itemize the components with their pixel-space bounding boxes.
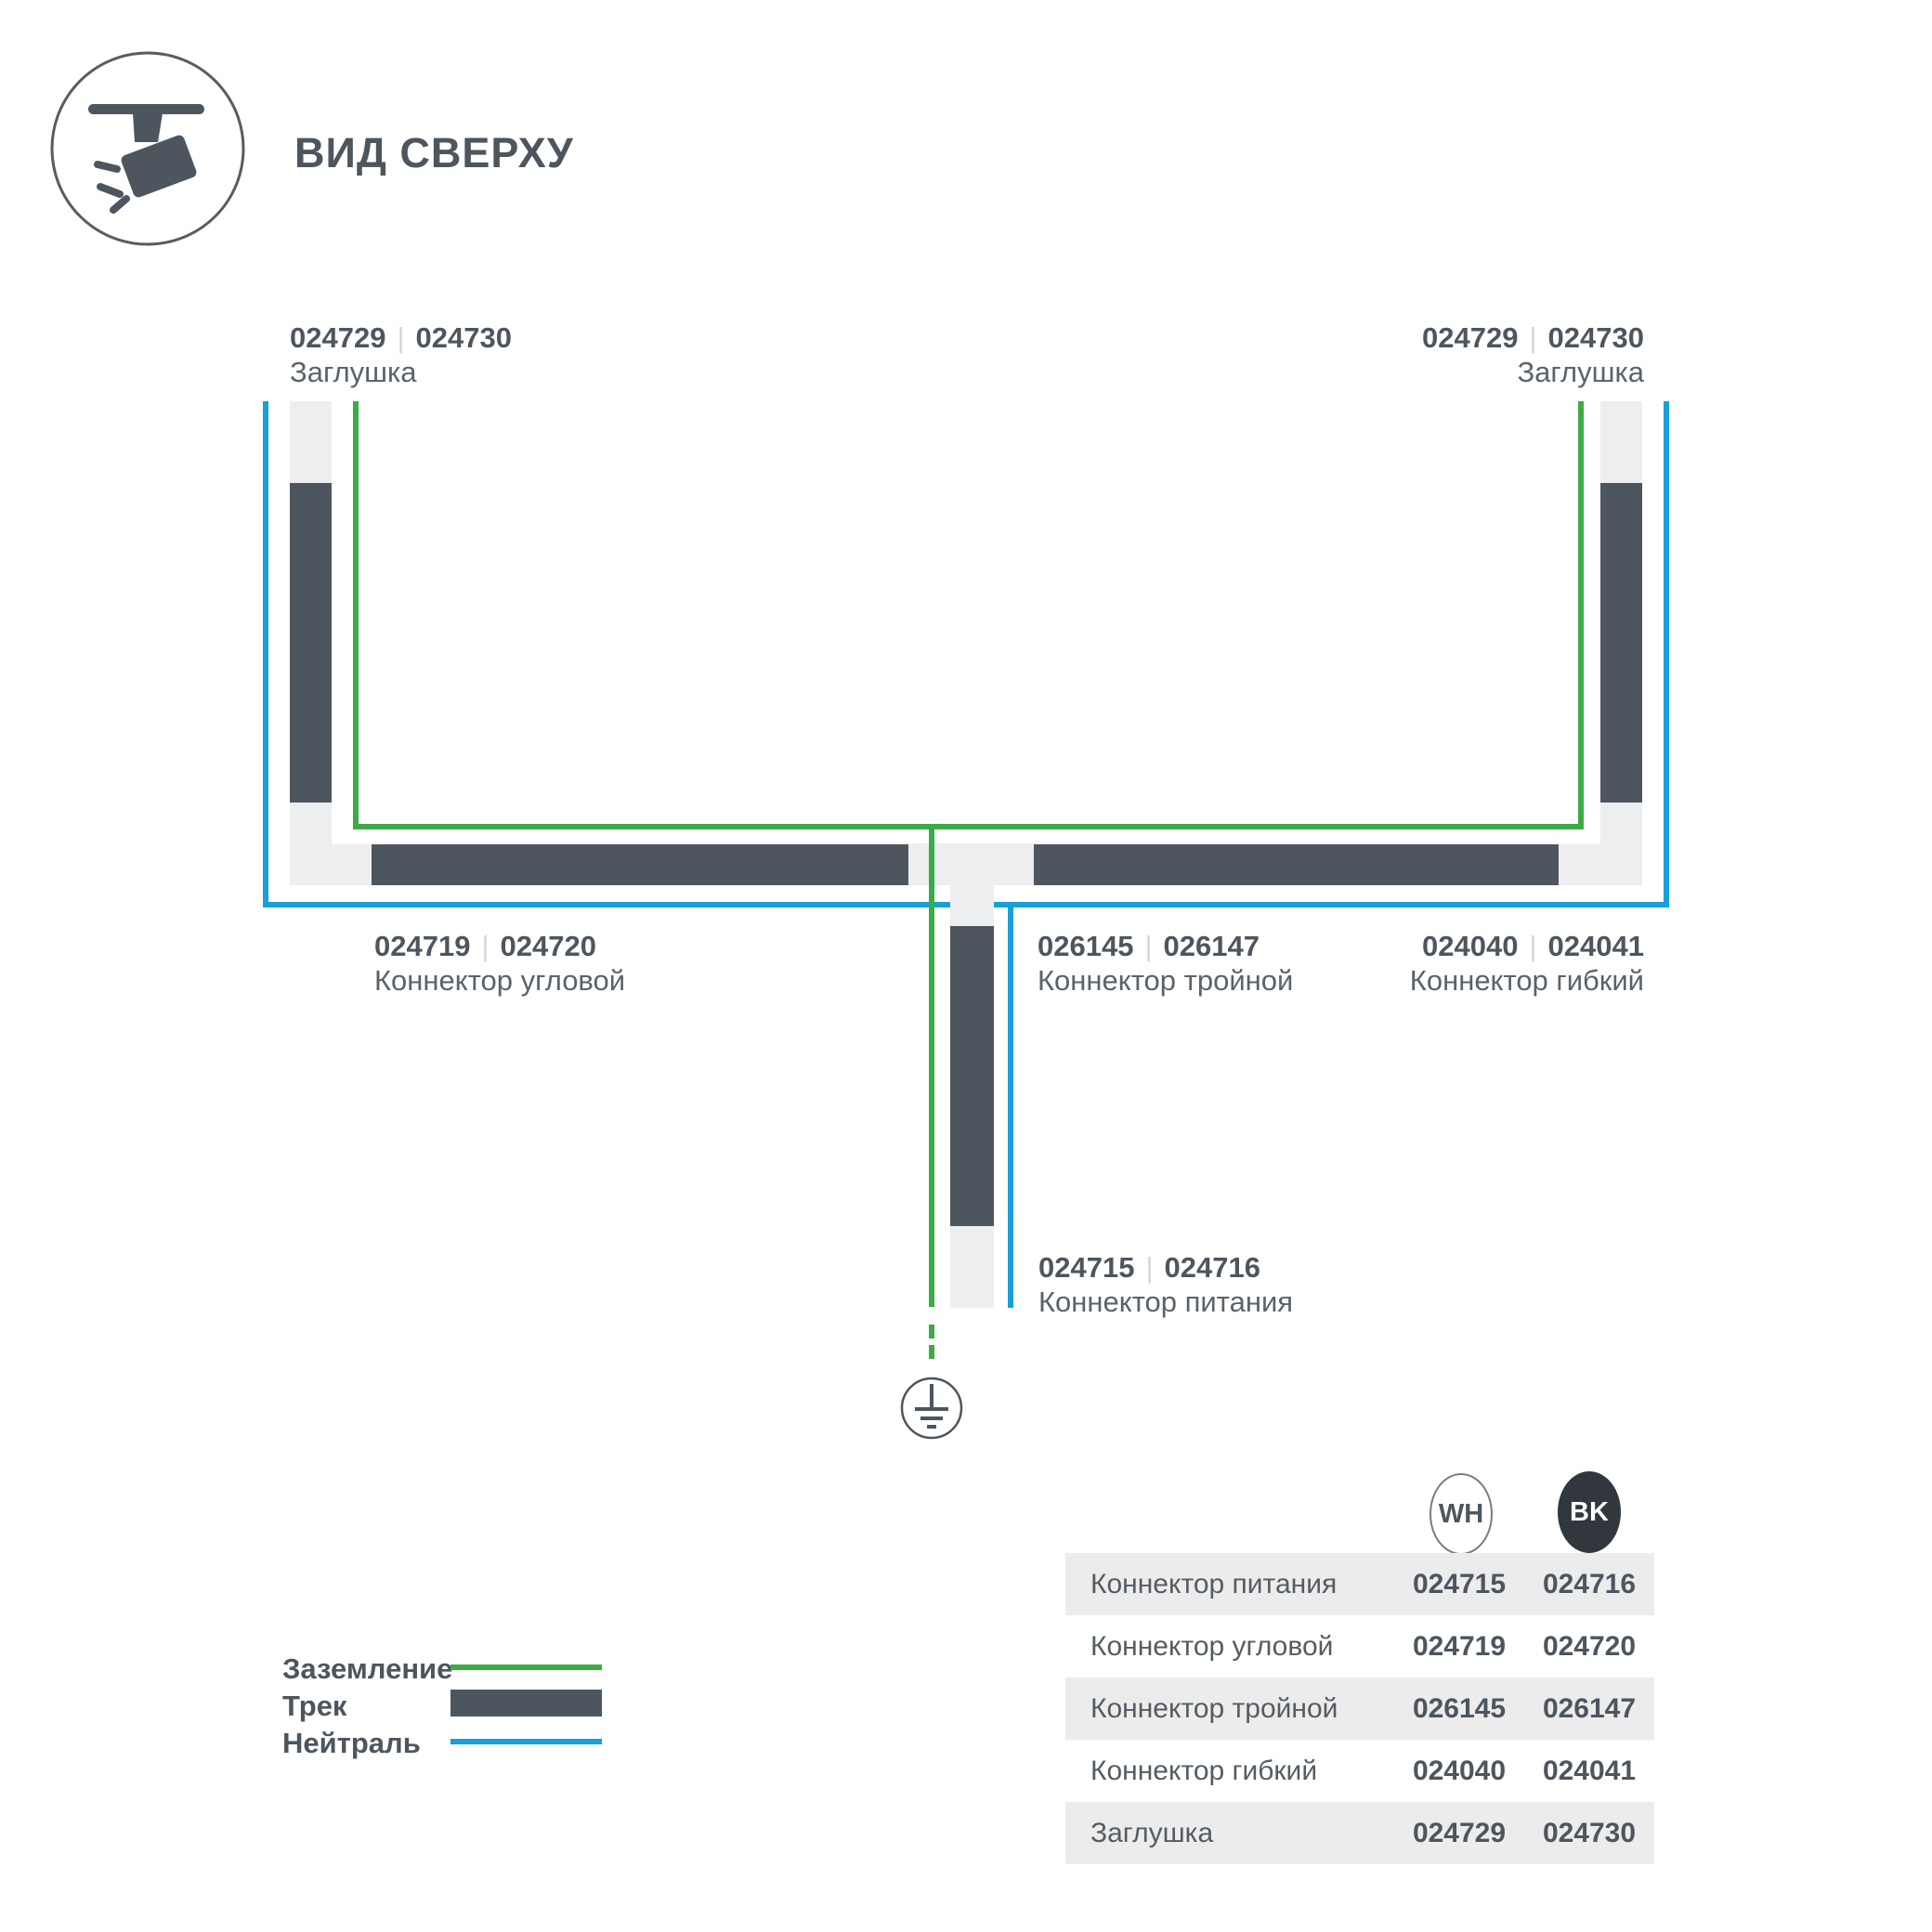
ground-line-dash [929,1345,934,1359]
legend-track-swatch [450,1690,602,1717]
label-flexible-connector: 024040|024041 Коннектор гибкий [1410,931,1644,997]
power-connector [950,1226,994,1308]
row-code-wh: 024719 [1403,1615,1515,1677]
legend-ground-label: Заземление [282,1652,452,1686]
ground-line-right [1578,401,1584,829]
row-code-wh: 024040 [1403,1740,1515,1802]
table-row: Заглушка 024729 024730 [1065,1802,1654,1864]
track-segment-top-right [1034,844,1559,885]
part-name: Заглушка [290,357,512,388]
legend-track-label: Трек [282,1690,346,1723]
ground-line-left [353,401,359,829]
neutral-line-right [1664,401,1669,907]
part-codes: 024040|024041 [1410,931,1644,962]
part-codes: 024719|024720 [374,931,625,962]
track-spotlight-icon [50,51,245,246]
label-end-cap-left: 024729|024730 Заглушка [290,322,512,388]
track-segment-top-left [372,844,908,885]
tee-connector [908,843,1034,885]
corner-connector-right [1559,844,1642,885]
row-code-bk: 024716 [1534,1553,1645,1615]
part-codes: 024729|024730 [290,322,512,354]
table-row: Коннектор угловой 024719 024720 [1065,1615,1654,1677]
column-header-white: WH [1429,1473,1493,1555]
part-name: Коннектор питания [1038,1286,1293,1318]
row-code-wh: 026145 [1403,1677,1515,1740]
ground-line-dash [929,1325,934,1338]
ground-line-branch [929,829,934,1307]
corner-connector-left [290,844,372,885]
tee-connector-stem [950,885,994,927]
table-row: Коннектор питания 024715 024716 [1065,1553,1654,1615]
part-name: Заглушка [1422,357,1644,388]
end-cap-right [1600,401,1642,483]
part-codes: 026145|026147 [1038,931,1293,962]
track-segment-right [1600,483,1642,803]
legend-neutral-label: Нейтраль [282,1727,421,1760]
label-tee-connector: 026145|026147 Коннектор тройной [1038,931,1293,997]
part-name: Коннектор тройной [1038,965,1293,997]
row-code-bk: 024041 [1534,1740,1645,1802]
table-row: Коннектор тройной 026145 026147 [1065,1677,1654,1740]
row-name: Коннектор питания [1090,1553,1337,1615]
row-name: Коннектор угловой [1090,1615,1333,1677]
row-code-bk: 026147 [1534,1677,1645,1740]
page: ВИД СВЕРХУ 024729|024730 Заглушка [0,0,1932,1932]
earth-ground-icon [899,1376,964,1441]
legend-ground-swatch [450,1664,602,1670]
neutral-line-left [263,401,268,907]
track-segment-left [290,483,332,803]
part-name: Коннектор угловой [374,965,625,997]
part-codes: 024729|024730 [1422,322,1644,354]
page-title: ВИД СВЕРХУ [294,129,574,177]
track-segment-stem [950,926,994,1226]
legend-neutral-swatch [450,1739,602,1744]
label-corner-connector: 024719|024720 Коннектор угловой [374,931,625,997]
row-code-wh: 024715 [1403,1553,1515,1615]
row-code-bk: 024730 [1534,1802,1645,1864]
part-codes: 024715|024716 [1038,1252,1293,1284]
column-header-black: BK [1558,1471,1621,1553]
row-name: Коннектор тройной [1090,1677,1338,1740]
row-name: Заглушка [1090,1802,1213,1864]
neutral-line-branch [1008,907,1013,1308]
table-row: Коннектор гибкий 024040 024041 [1065,1740,1654,1802]
end-cap-left [290,401,332,483]
row-code-bk: 024720 [1534,1615,1645,1677]
row-code-wh: 024729 [1403,1802,1515,1864]
part-name: Коннектор гибкий [1410,965,1644,997]
ground-line-top [353,824,1584,829]
label-power-connector: 024715|024716 Коннектор питания [1038,1252,1293,1318]
label-end-cap-right: 024729|024730 Заглушка [1422,322,1644,388]
row-name: Коннектор гибкий [1090,1740,1317,1802]
